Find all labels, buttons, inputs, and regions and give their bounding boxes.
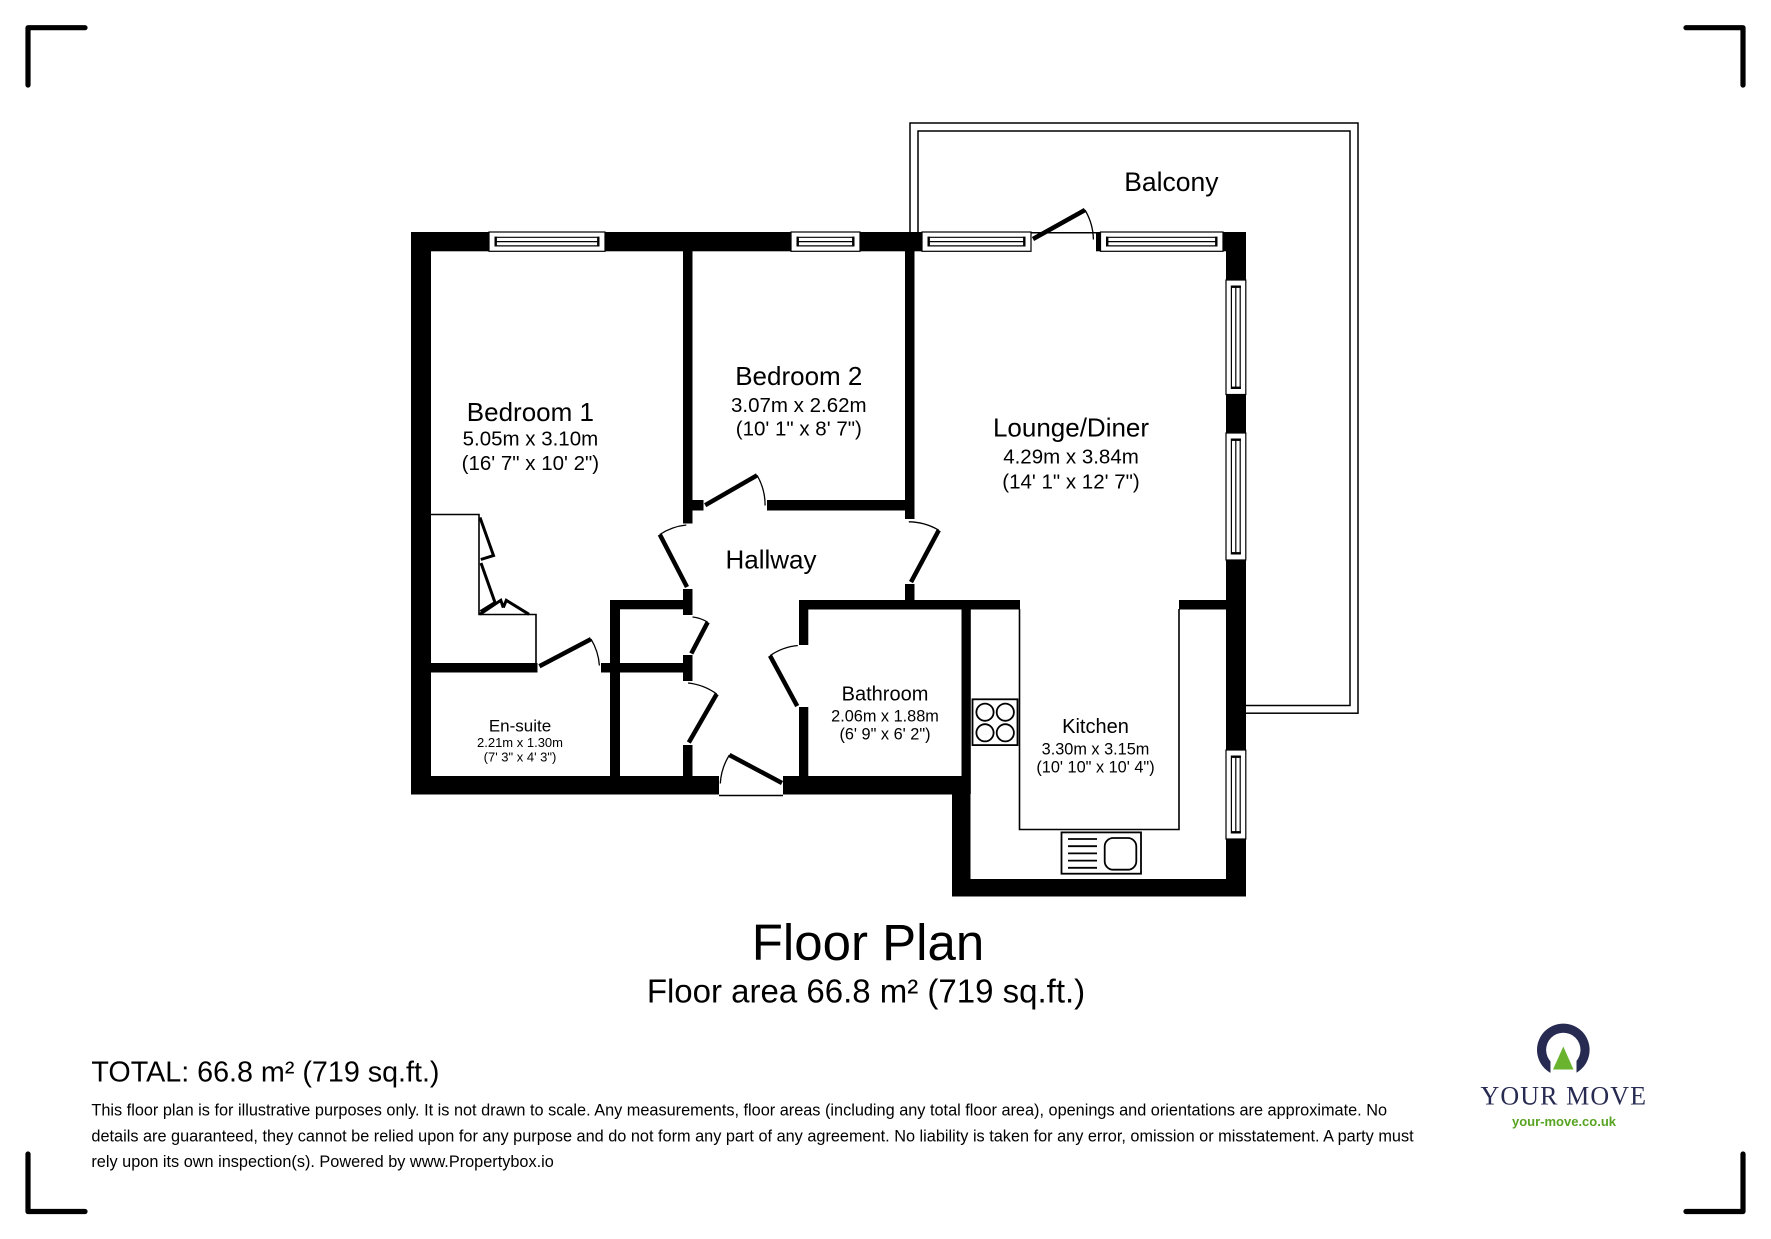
svg-text:Floor area 66.8 m² (719 sq.ft.: Floor area 66.8 m² (719 sq.ft.) xyxy=(647,973,1085,1010)
svg-text:(6' 9" x 6' 2"): (6' 9" x 6' 2") xyxy=(839,726,930,744)
svg-text:4.29m x 3.84m: 4.29m x 3.84m xyxy=(1003,446,1139,469)
svg-text:(16' 7" x 10' 2"): (16' 7" x 10' 2") xyxy=(462,452,599,475)
svg-text:(10' 10" x 10' 4"): (10' 10" x 10' 4") xyxy=(1036,759,1154,777)
svg-text:Hallway: Hallway xyxy=(725,544,816,574)
svg-text:details are guaranteed, they c: details are guaranteed, they cannot be r… xyxy=(91,1127,1414,1145)
svg-text:Kitchen: Kitchen xyxy=(1062,716,1129,738)
svg-text:2.21m x 1.30m: 2.21m x 1.30m xyxy=(477,735,563,750)
svg-text:This floor plan is for illustr: This floor plan is for illustrative purp… xyxy=(91,1101,1387,1119)
svg-text:3.30m x 3.15m: 3.30m x 3.15m xyxy=(1042,741,1150,759)
svg-text:(10' 1" x 8' 7"): (10' 1" x 8' 7") xyxy=(736,418,862,441)
svg-text:5.05m x 3.10m: 5.05m x 3.10m xyxy=(463,428,599,451)
svg-text:Bedroom 1: Bedroom 1 xyxy=(467,397,594,427)
svg-text:TOTAL: 66.8 m² (719 sq.ft.): TOTAL: 66.8 m² (719 sq.ft.) xyxy=(91,1057,439,1089)
svg-text:Floor Plan: Floor Plan xyxy=(752,914,984,971)
svg-text:your-move.co.uk: your-move.co.uk xyxy=(1512,1114,1617,1129)
svg-text:2.06m x 1.88m: 2.06m x 1.88m xyxy=(831,708,939,726)
svg-text:En-suite: En-suite xyxy=(489,716,551,735)
svg-text:Lounge/Diner: Lounge/Diner xyxy=(993,413,1149,443)
svg-text:rely upon its own inspection(s: rely upon its own inspection(s). Powered… xyxy=(91,1153,553,1171)
svg-text:YOUR MOVE: YOUR MOVE xyxy=(1480,1081,1647,1110)
svg-text:(14' 1" x 12' 7"): (14' 1" x 12' 7") xyxy=(1002,471,1139,494)
svg-text:Bedroom 2: Bedroom 2 xyxy=(735,361,862,391)
svg-text:Bathroom: Bathroom xyxy=(842,684,929,706)
svg-text:Balcony: Balcony xyxy=(1124,167,1219,197)
svg-text:(7' 3" x 4' 3"): (7' 3" x 4' 3") xyxy=(484,750,557,765)
svg-text:3.07m x 2.62m: 3.07m x 2.62m xyxy=(731,394,867,417)
